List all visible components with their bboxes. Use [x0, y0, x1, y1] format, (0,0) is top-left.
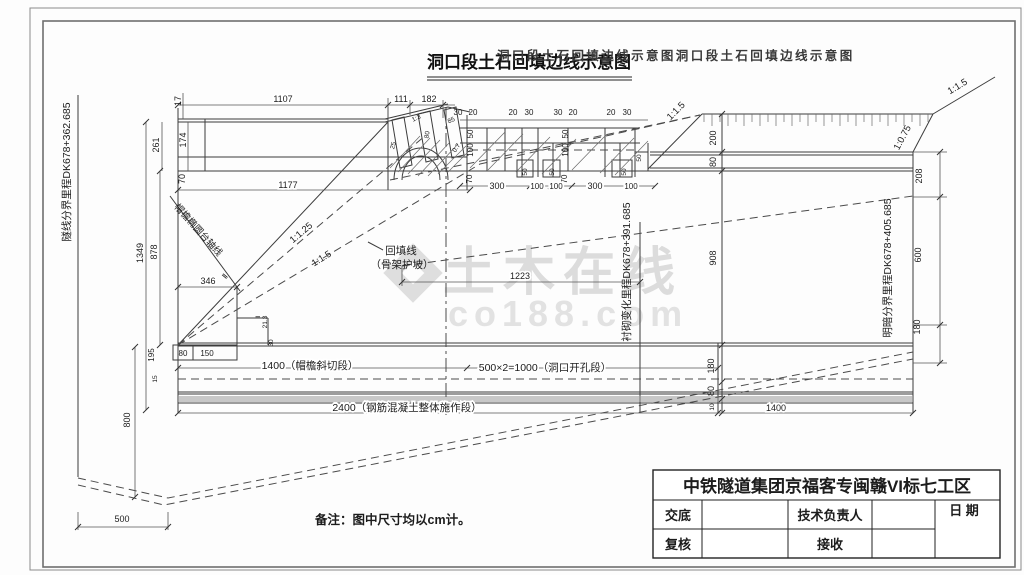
open-cut-boundary-milestone: 明暗分界里程DK678+405.685 — [881, 198, 894, 337]
dim-label: 908 — [708, 250, 718, 265]
dim-label: 261 — [151, 137, 161, 152]
dim-label: 20 — [607, 108, 616, 117]
dim-label: 180 — [912, 319, 922, 334]
dim-label: 182 — [421, 94, 436, 104]
drawing-svg: 土木在线 co188.com — [0, 0, 1024, 575]
dim-label: 30 — [525, 108, 534, 117]
dim-label: 174 — [178, 132, 188, 147]
slab-band — [178, 396, 913, 402]
left-boundary-milestone: 隧线分界里程DK678+362.685 — [60, 102, 73, 241]
title-block-jiaodi: 交底 — [665, 508, 691, 523]
lining-change-milestone: 衬砌变化里程DK678+391.685 — [620, 202, 633, 341]
dim-label: 300 — [489, 181, 504, 191]
dim-label: 1223 — [510, 271, 530, 281]
dim-label: 50 — [561, 129, 570, 138]
dim-label: 30 — [623, 108, 632, 117]
segment-label: 2400（钢筋混凝土整体施作段） — [332, 401, 481, 414]
slope-label: 1:0.75 — [892, 124, 914, 152]
watermark-domain: co188.com — [448, 293, 688, 334]
dim-label: 150 — [200, 349, 214, 358]
dim-label: 20 — [569, 108, 578, 117]
dim-label: 20 — [509, 108, 518, 117]
title-block-company: 中铁隧道集团京福客专闽赣VI标七工区 — [683, 476, 971, 496]
dim-label: 100 — [561, 143, 570, 157]
slope-label: 1:1.5 — [310, 249, 334, 270]
dim-label: 1107 — [273, 94, 292, 104]
dim-label: 50 — [466, 129, 475, 138]
segment-label: 500×2=1000（洞口开孔段） — [479, 361, 611, 374]
dim-label: 21.3 — [262, 315, 269, 328]
dim-label: 346 — [200, 276, 215, 286]
dim-label: 300 — [587, 181, 602, 191]
title-block-jieshou: 接收 — [817, 537, 844, 552]
dim-label: 1400 — [766, 403, 786, 413]
dim-label: 30 — [454, 108, 463, 117]
remark-note: 备注：图中尺寸均以cm计。 — [314, 512, 471, 527]
dim-label: 800 — [122, 412, 132, 427]
dim-label: 195 — [147, 348, 156, 362]
dim-label: 1349 — [135, 243, 145, 263]
dim-label: 50 — [621, 168, 628, 176]
dim-label: 80 — [706, 386, 716, 396]
dim-label: 100 — [624, 182, 638, 191]
dim-label: 80 — [708, 157, 718, 167]
dim-label: 1177 — [278, 180, 297, 190]
dim-label: 10 — [709, 403, 716, 411]
eave-axis-label: 帽檐椭圆台轴线 — [172, 201, 226, 259]
dim-label: 180 — [706, 358, 716, 373]
dim-label: 0.7 — [451, 142, 462, 154]
dim-label: 200 — [708, 130, 718, 145]
dim-label: 100 — [466, 143, 475, 157]
axis-marker: Ⅱ — [220, 272, 229, 281]
drawing-title-ghost: 洞口段土石回填边线示意图洞口段土石回填边线示意图 — [497, 48, 855, 63]
dim-label: 80 — [423, 130, 431, 139]
dim-label: 17 — [173, 96, 183, 106]
backfill-line-sub-label: （骨架护坡） — [371, 258, 434, 271]
dim-label: 111 — [394, 94, 408, 104]
dim-label: 50 — [636, 154, 643, 162]
dim-label: 100 — [530, 182, 544, 191]
title-block-date: 日 期 — [949, 503, 979, 518]
dim-label: 70 — [177, 174, 187, 184]
dim-label: 85 — [447, 116, 457, 125]
title-underline — [427, 77, 632, 80]
backfill-line-label: 回填线 — [385, 244, 417, 257]
dim-label: 208 — [914, 168, 924, 183]
dim-label: 878 — [149, 244, 159, 259]
dim-label: 30 — [268, 339, 275, 347]
dim-label: 80 — [179, 349, 188, 358]
dim-label: 100 — [549, 182, 563, 191]
segment-label: 1400（帽檐斜切段） — [262, 359, 359, 372]
dim-label: 70 — [465, 174, 474, 183]
dim-label: 50 — [522, 168, 529, 176]
dim-label: 500 — [114, 514, 129, 524]
dim-label: 15 — [152, 375, 159, 383]
dim-label: 600 — [913, 247, 923, 262]
title-block-fuhe: 复核 — [664, 537, 691, 552]
dim-label: 30 — [554, 108, 563, 117]
cad-drawing-canvas: 土木在线 co188.com — [0, 0, 1024, 575]
dim-label: 20 — [469, 108, 478, 117]
slope-label: 1:1.5 — [665, 100, 688, 123]
title-block: 中铁隧道集团京福客专闽赣VI标七工区 交底 技术负责人 日 期 复核 接收 — [653, 470, 1000, 558]
dim-label: 50 — [549, 168, 556, 176]
watermark: 土木在线 co188.com — [383, 243, 688, 334]
axis-marker: Ⅱ — [255, 315, 262, 318]
title-block-tech-lead: 技术负责人 — [797, 508, 863, 523]
